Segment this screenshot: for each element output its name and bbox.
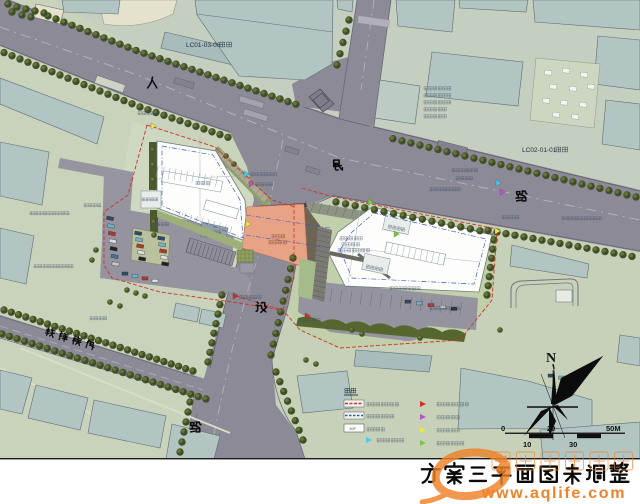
- svg-text:50M: 50M: [606, 424, 621, 433]
- svg-text:10F: 10F: [349, 426, 356, 431]
- svg-text:0: 0: [501, 424, 505, 433]
- svg-text:N: N: [546, 351, 556, 366]
- svg-text:LC02-01-01: LC02-01-01: [522, 147, 557, 154]
- svg-text:20: 20: [547, 424, 555, 433]
- svg-text:30: 30: [569, 440, 577, 449]
- svg-text:www.aqlife.com: www.aqlife.com: [481, 485, 626, 502]
- svg-text:10: 10: [523, 440, 531, 449]
- svg-text:LC01-03-06: LC01-03-06: [186, 42, 221, 49]
